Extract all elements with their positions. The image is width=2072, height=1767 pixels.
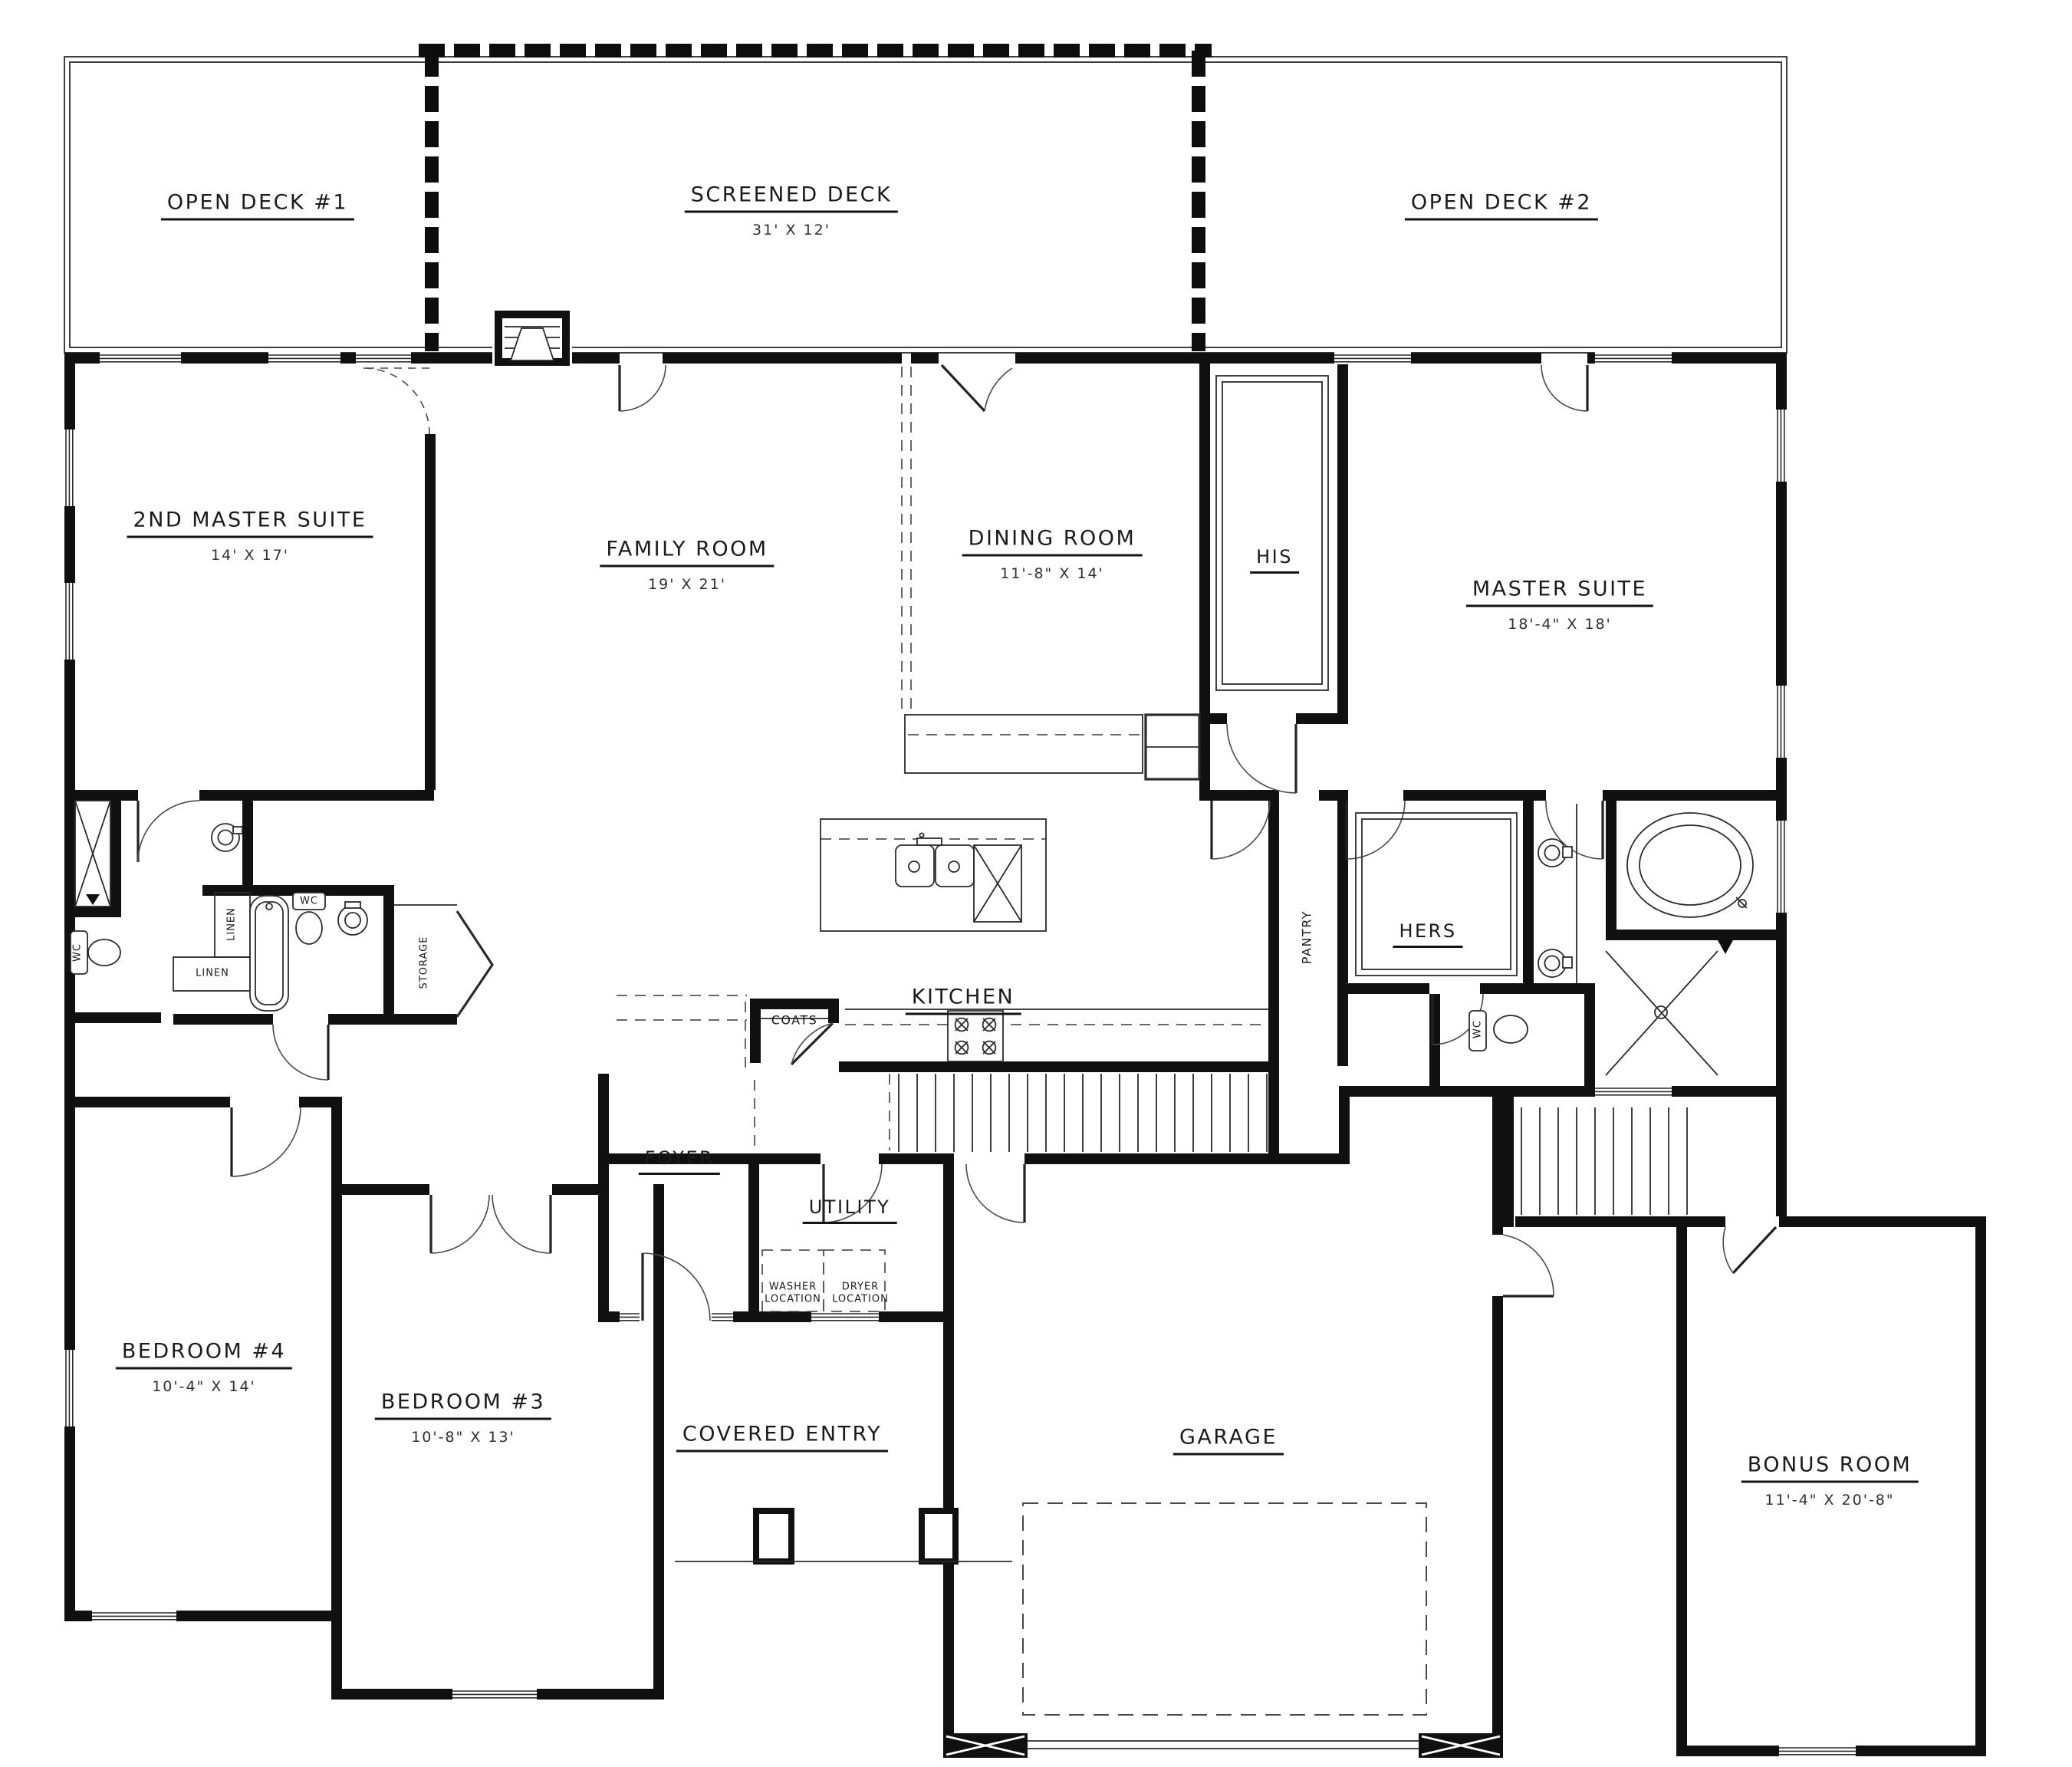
- room-dims-family-room: 19' X 21': [648, 576, 726, 593]
- left-shower: [75, 801, 110, 907]
- room-dims-bedroom-3: 10'-8" X 13': [411, 1429, 515, 1446]
- room-label-wc-1: WC: [72, 943, 84, 962]
- room-dims-2nd-master-suite: 14' X 17': [211, 547, 289, 564]
- room-label-storage: STORAGE: [419, 936, 430, 989]
- garage-door: [946, 1736, 1500, 1755]
- garage-parking-dashed: [1023, 1503, 1426, 1715]
- room-label-his-closet: HIS: [1250, 546, 1299, 574]
- room-label-master-suite: MASTER SUITE: [1466, 577, 1653, 607]
- dashed-openings: [617, 367, 1268, 1150]
- room-label-coats: COATS: [771, 1013, 818, 1028]
- room-label-hers-closet: HERS: [1393, 920, 1462, 948]
- his-closet-shelves: [1216, 376, 1328, 690]
- room-label-2nd-master-suite: 2ND MASTER SUITE: [127, 508, 373, 538]
- entry-pillars: [675, 1511, 1012, 1561]
- room-dims-bonus-room: 11'-4" X 20'-8": [1764, 1492, 1894, 1509]
- room-label-open-deck-1: OPEN DECK #1: [161, 191, 354, 221]
- room-label-bonus-room: BONUS ROOM: [1741, 1453, 1919, 1483]
- room-label-linen-1: LINEN: [226, 907, 238, 941]
- hall-bath-fixtures: [250, 893, 367, 1011]
- room-label-utility: UTILITY: [803, 1196, 897, 1224]
- storage-closet: [394, 905, 492, 1017]
- room-label-open-deck-2: OPEN DECK #2: [1405, 191, 1598, 221]
- room-label-covered-entry: COVERED ENTRY: [676, 1423, 888, 1453]
- room-label-kitchen: KITCHEN: [906, 986, 1021, 1015]
- kitchen-island: [821, 819, 1046, 931]
- hers-closet-shelves: [1356, 813, 1517, 976]
- bonus-stairs: [1521, 1107, 1687, 1215]
- room-dims-bedroom-4: 10'-4" X 14': [152, 1378, 256, 1395]
- label-dryer-location: DRYER LOCATION: [815, 1281, 906, 1305]
- floor-plan-drawing: [0, 0, 2072, 1767]
- room-label-garage: GARAGE: [1173, 1426, 1284, 1456]
- room-dims-screened-deck: 31' X 12': [752, 222, 830, 239]
- room-label-bedroom-3: BEDROOM #3: [375, 1390, 551, 1420]
- walls: [64, 353, 1986, 1758]
- vanity-sink-2nd-master: [212, 824, 242, 851]
- room-label-dining-room: DINING ROOM: [962, 527, 1143, 557]
- room-dims-master-suite: 18'-4" X 18': [1508, 616, 1612, 633]
- room-label-linen-2: LINEN: [196, 968, 229, 979]
- room-label-family-room: FAMILY ROOM: [600, 538, 774, 568]
- cooktop: [948, 1011, 1003, 1061]
- room-label-screened-deck: SCREENED DECK: [685, 183, 898, 213]
- room-label-bedroom-4: BEDROOM #4: [116, 1340, 292, 1370]
- room-label-wc-3: WC: [1472, 1020, 1484, 1038]
- floor-plan: OPEN DECK #1 SCREENED DECK 31' X 12' OPE…: [0, 0, 2072, 1767]
- room-label-foyer: FOYER: [639, 1147, 720, 1175]
- room-label-pantry: PANTRY: [1300, 910, 1314, 964]
- room-dims-dining-room: 11'-8" X 14': [1000, 565, 1104, 582]
- room-label-wc-2: WC: [300, 896, 318, 907]
- fireplace: [492, 311, 572, 364]
- main-stairs: [899, 1074, 1267, 1152]
